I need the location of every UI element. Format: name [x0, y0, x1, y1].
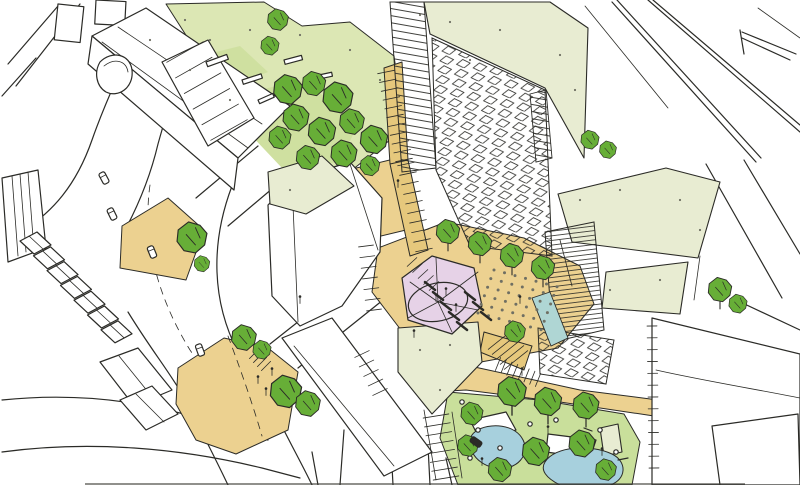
canopy: [97, 55, 133, 94]
masterplan-figure: [0, 0, 800, 485]
masterplan-sketch: [0, 0, 800, 485]
